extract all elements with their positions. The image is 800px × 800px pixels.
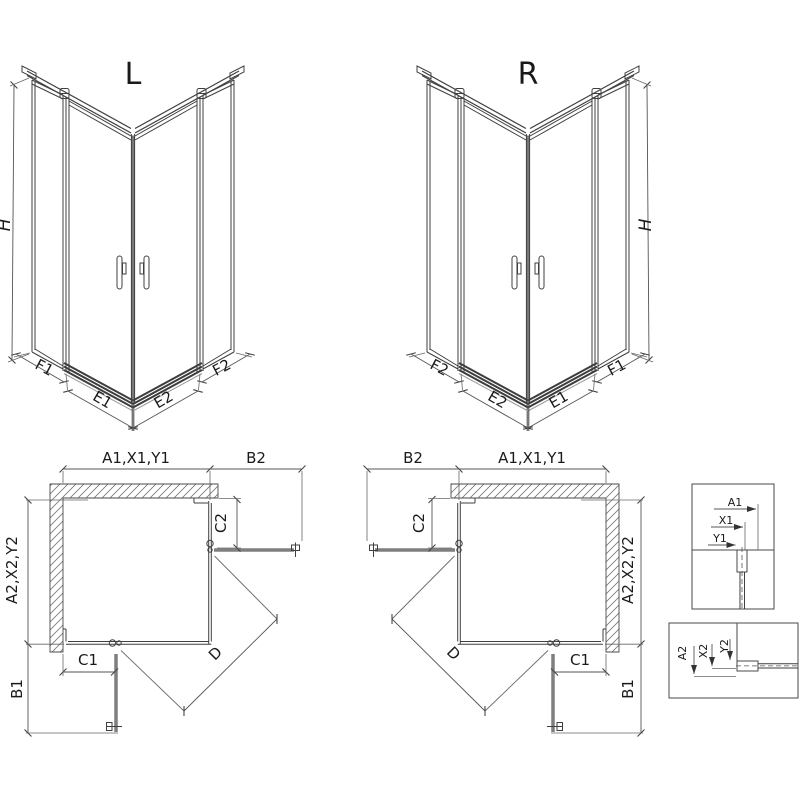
building-wall <box>50 484 218 652</box>
dim-label-e1: E1 <box>90 387 115 412</box>
detail-box-wall-profile-top: A1 X1 Y1 <box>692 484 774 609</box>
wall-profile-section <box>737 550 747 572</box>
iso-view-right: R H F2 E2 E1 F1 <box>409 57 656 431</box>
dim-label-h: H <box>0 218 15 231</box>
dim-label-h: H <box>636 218 656 231</box>
building-wall <box>451 484 619 652</box>
dim-label-c2: C2 <box>410 513 428 533</box>
shower-enclosure-diagram: L H F1 E1 E2 F2 R H F2 E2 E1 F1 A1,X1,Y1… <box>0 0 800 800</box>
dim-label-b2: B2 <box>246 449 266 467</box>
dim-label-depth: A2,X2,Y2 <box>619 536 637 604</box>
dim-label-f1: F1 <box>604 355 628 379</box>
dim-label-d: D <box>205 643 226 664</box>
dim-label-c1: C1 <box>78 651 98 669</box>
dim-label-depth: A2,X2,Y2 <box>3 536 21 604</box>
detail-label-a1: A1 <box>728 496 743 509</box>
detail-label-y2: Y2 <box>718 639 731 654</box>
technical-drawing-canvas: L H F1 E1 E2 F2 R H F2 E2 E1 F1 A1,X1,Y1… <box>0 0 800 800</box>
detail-label-x2: X2 <box>697 644 710 659</box>
detail-label-x1: X1 <box>719 514 734 527</box>
detail-label-y1: Y1 <box>712 532 727 545</box>
plan-view-right: B2 A1,X1,Y1 C2 A2,X2,Y2 C1 B1 D <box>367 449 643 733</box>
variant-title-left: L <box>125 57 142 92</box>
dim-label-e2: E2 <box>151 387 176 412</box>
dim-label-c1: C1 <box>570 651 590 669</box>
dim-label-d: D <box>443 643 464 664</box>
dim-label-c2: C2 <box>212 513 230 533</box>
dim-label-f2: F2 <box>209 355 233 379</box>
detail-label-a2: A2 <box>676 646 689 661</box>
dim-label-e1: E1 <box>546 387 571 412</box>
variant-title-right: R <box>518 57 539 92</box>
iso-view-left: L H F1 E1 E2 F2 <box>0 57 252 431</box>
dim-label-e2: E2 <box>485 387 510 412</box>
plan-view-left: A1,X1,Y1 B2 C2 A2,X2,Y2 C1 B1 D <box>3 449 302 733</box>
dim-label-width: A1,X1,Y1 <box>102 449 170 467</box>
dim-label-width: A1,X1,Y1 <box>498 449 566 467</box>
dim-label-f1: F1 <box>32 355 56 379</box>
detail-box-wall-profile-bottom: A2 X2 Y2 <box>669 623 798 698</box>
dim-label-f2: F2 <box>427 355 451 379</box>
dim-label-b1: B1 <box>619 679 637 699</box>
dim-label-b1: B1 <box>8 679 26 699</box>
dim-label-b2: B2 <box>403 449 423 467</box>
